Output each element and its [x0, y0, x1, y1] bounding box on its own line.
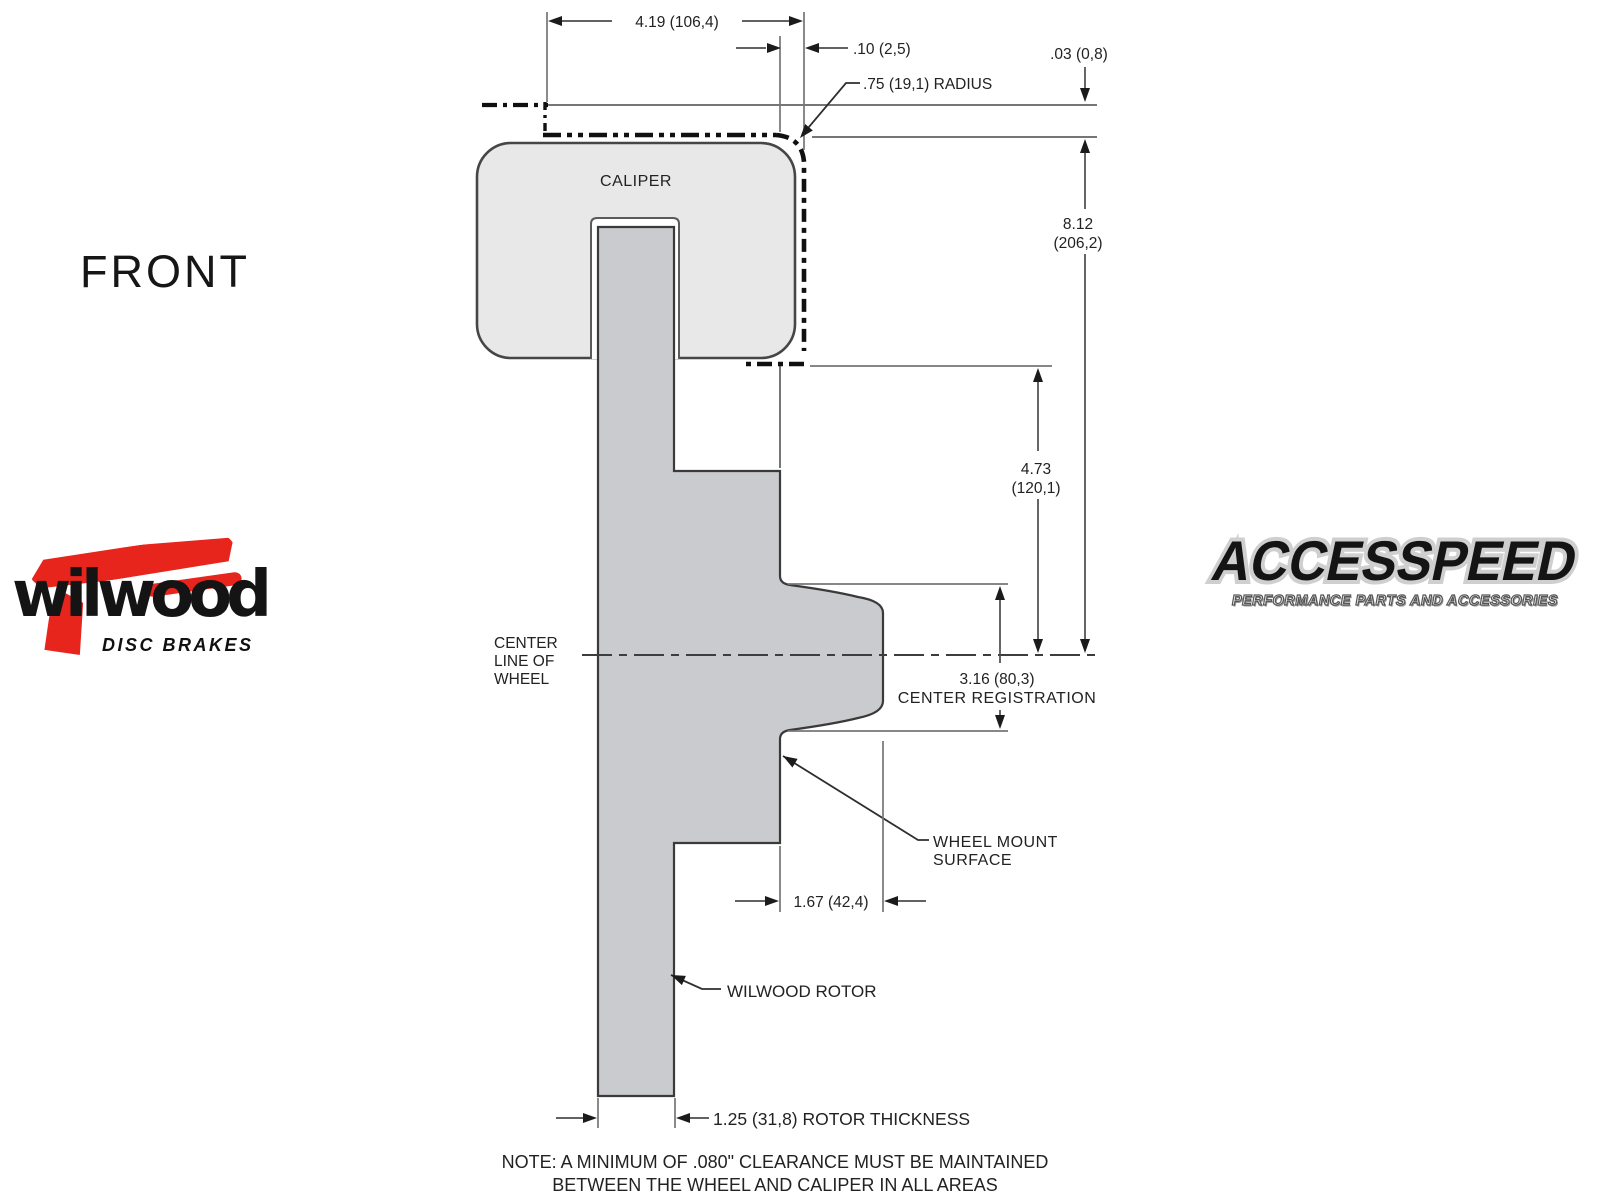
dim-rotor-thickness-text: 1.25 (31,8) ROTOR THICKNESS: [713, 1109, 970, 1129]
wheel-mount-callout: WHEEL MOUNT SURFACE: [780, 752, 1057, 869]
arrowhead-icon: [548, 16, 562, 26]
dim-caliper-width-text: 4.19 (106,4): [635, 14, 719, 31]
wheel-mount-label-2: SURFACE: [933, 852, 1012, 869]
dim-hat-height-in: 4.73: [1021, 461, 1051, 478]
arrowhead-icon: [1033, 368, 1043, 382]
radius-callout: .75 (19,1) RADIUS: [796, 76, 992, 141]
drawing-page: FRONT wilwood DISC BRAKES ACCESSPEED ACC…: [0, 0, 1600, 1200]
dim-rotor-thickness: 1.25 (31,8) ROTOR THICKNESS: [556, 1098, 970, 1129]
arrowhead-icon: [583, 1113, 597, 1123]
centerline-label-1: CENTER: [494, 635, 558, 652]
centerline-label-2: LINE OF: [494, 653, 554, 670]
rotor-label: WILWOOD ROTOR: [727, 982, 877, 1001]
note: NOTE: A MINIMUM OF .080" CLEARANCE MUST …: [502, 1152, 1049, 1195]
dim-center-registration-value: 3.16 (80,3): [960, 671, 1035, 688]
dim-wheel-clearance: .03 (0,8): [1050, 46, 1108, 102]
arrowhead-icon: [789, 16, 803, 26]
dim-overall-height-in: 8.12: [1063, 216, 1093, 233]
centerline-label-3: WHEEL: [494, 671, 550, 688]
dim-wheel-clearance-text: .03 (0,8): [1050, 46, 1108, 63]
note-line-2: BETWEEN THE WHEEL AND CALIPER IN ALL ARE…: [552, 1175, 997, 1195]
dim-overall-height-mm: (206,2): [1053, 235, 1102, 252]
arrowhead-icon: [765, 896, 779, 906]
dim-mount-offset-text: 1.67 (42,4): [794, 894, 869, 911]
arrowhead-icon: [676, 1113, 690, 1123]
arrowhead-icon: [995, 715, 1005, 729]
caliper-label: CALIPER: [600, 173, 672, 190]
dim-caliper-width: 4.19 (106,4): [547, 12, 804, 150]
arrowhead-icon: [1080, 639, 1090, 653]
rotor-callout: WILWOOD ROTOR: [669, 970, 876, 1001]
arrowhead-icon: [1080, 88, 1090, 102]
dim-center-registration-label: CENTER REGISTRATION: [898, 690, 1097, 707]
arrowhead-icon: [805, 43, 819, 53]
dim-caliper-overhang-text: .10 (2,5): [853, 41, 911, 58]
wheel-mount-label-1: WHEEL MOUNT: [933, 834, 1058, 851]
arrowhead-icon: [884, 896, 898, 906]
radius-callout-text: .75 (19,1) RADIUS: [863, 76, 992, 93]
leader-line: [803, 83, 860, 134]
note-line-1: NOTE: A MINIMUM OF .080" CLEARANCE MUST …: [502, 1152, 1049, 1172]
arrowhead-icon: [780, 752, 797, 768]
arrowhead-icon: [767, 43, 781, 53]
arrowhead-icon: [1080, 139, 1090, 153]
dim-overall-height: 8.12 (206,2): [1053, 139, 1102, 653]
dim-hat-height-mm: (120,1): [1011, 480, 1060, 497]
arrowhead-icon: [995, 586, 1005, 600]
technical-drawing: CALIPER CENTER LINE OF WHEEL: [0, 0, 1600, 1200]
arrowhead-icon: [1033, 639, 1043, 653]
leader-line: [783, 756, 929, 840]
